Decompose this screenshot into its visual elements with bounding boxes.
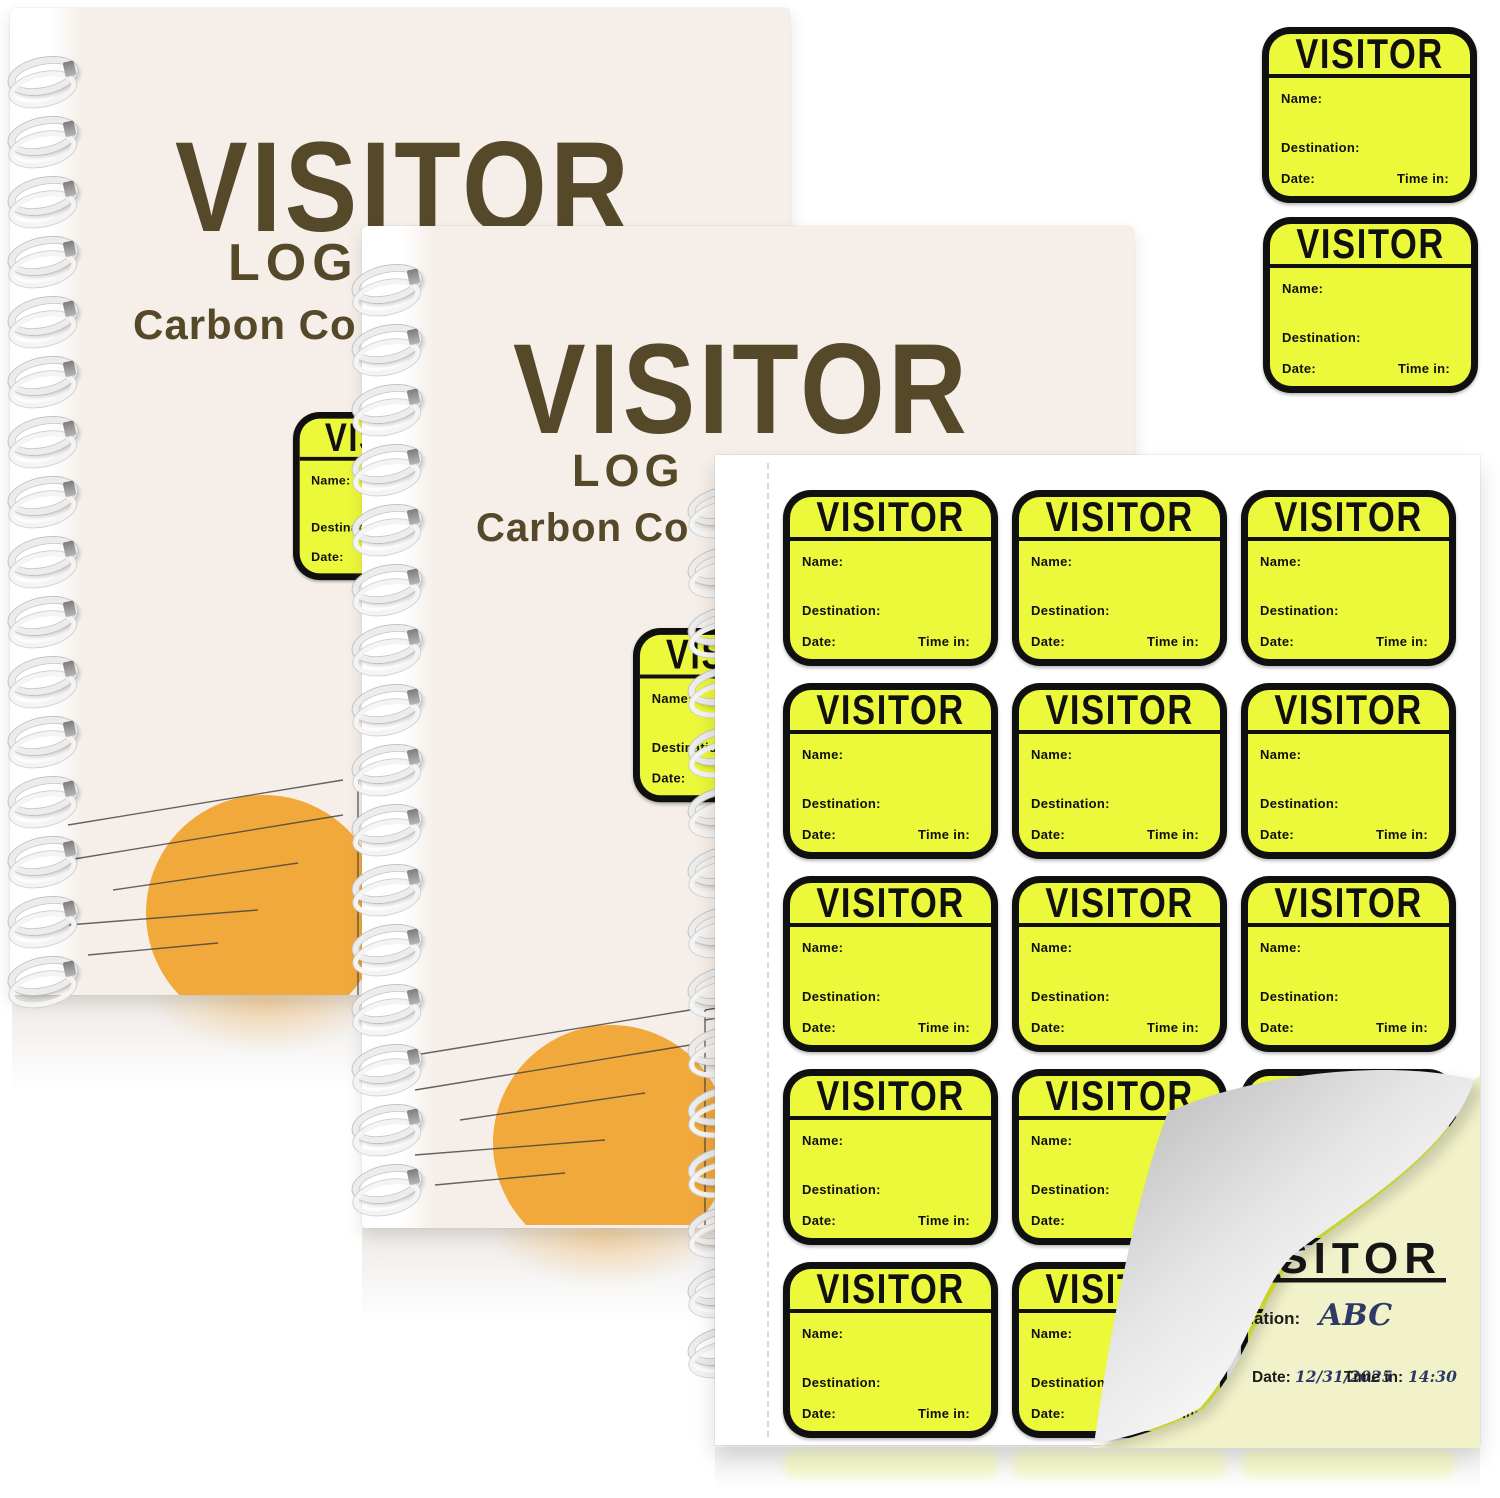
sheet-visitor-badge-sticker: VISITOR Name: Destination: Date: Time in… (783, 490, 998, 666)
visitor-badge-face: VISITOR Name: Destination: Date: Time in… (1270, 224, 1471, 386)
time-in-label: Time in: (918, 1406, 970, 1421)
name-label: Name: (1031, 1326, 1072, 1341)
visitor-badge-header: VISITOR (1019, 883, 1220, 927)
sheet-visitor-badge-sticker: VISITOR Name: Destination: Date: Time in… (1012, 683, 1227, 859)
date-label: Date: (1031, 1020, 1065, 1035)
sheet-reflection (715, 1447, 1480, 1498)
visitor-badge-body: Name: Destination: Date: Time in: (790, 1120, 991, 1238)
perforation-line (767, 463, 769, 1437)
visitor-badge-face: VISITOR Name: Destination: Date: Time in… (1269, 34, 1470, 196)
time-in-label: Time in: (1376, 1020, 1428, 1035)
destination-label: Destination: (802, 603, 881, 618)
visitor-badge-header: VISITOR (790, 883, 991, 927)
date-label: Date: (311, 550, 343, 564)
loose-visitor-badge: VISITOR Name: Destination: Date: Time in… (1262, 27, 1477, 203)
notebook2-sun-reflection (487, 1228, 723, 1286)
date-label: Date: (1031, 634, 1065, 649)
carbon-time-in-value: 14:30 (1408, 1367, 1457, 1386)
time-in-label: Time in: (1397, 171, 1449, 186)
time-in-label: Time in: (1147, 1020, 1199, 1035)
visitor-badge-footer: Date: Time in: (1260, 634, 1441, 649)
visitor-badge-body: Name: Destination: Date: Time in: (1019, 541, 1220, 659)
date-label: Date: (802, 827, 836, 842)
name-label: Name: (1031, 747, 1072, 762)
name-label: Name: (1281, 91, 1322, 106)
visitor-badge-body: Name: Destination: Date: Time in: (1248, 927, 1449, 1045)
visitor-badge-header: VISITOR (1269, 34, 1470, 78)
visitor-badge-face: VISITOR Name: Destination: Date: Time in… (1019, 690, 1220, 852)
name-label: Name: (1031, 554, 1072, 569)
destination-label: Destination: (1281, 140, 1360, 155)
visitor-badge-face: VISITOR Name: Destination: Date: Time in… (790, 1269, 991, 1431)
time-in-label: Time in: (1147, 827, 1199, 842)
destination-label: Destination: (1260, 603, 1339, 618)
destination-label: Destination: (802, 989, 881, 1004)
visitor-badge-footer: Date: Time in: (802, 1213, 983, 1228)
destination-label: Destination: (1031, 989, 1110, 1004)
visitor-badge-face: VISITOR Name: Destination: Date: Time in… (790, 497, 991, 659)
visitor-badge-title: VISITOR (1274, 690, 1423, 731)
name-label: Name: (311, 473, 350, 487)
visitor-badge-title: VISITOR (816, 883, 965, 924)
visitor-badge-footer: Date: Time in: (1260, 1020, 1441, 1035)
name-label: Name: (1282, 281, 1323, 296)
destination-label: Destination: (802, 796, 881, 811)
time-in-label: Time in: (1376, 827, 1428, 842)
carbon-date-label: Date: (1252, 1369, 1291, 1386)
badge-reflection-blob (1012, 1450, 1227, 1478)
date-label: Date: (1031, 827, 1065, 842)
visitor-badge-header: VISITOR (1248, 883, 1449, 927)
name-label: Name: (802, 1133, 843, 1148)
visitor-badge-footer: Date: Time in: (1031, 634, 1212, 649)
visitor-badge-footer: Date: Time in: (1031, 827, 1212, 842)
name-label: Name: (1260, 747, 1301, 762)
visitor-badge-title: VISITOR (816, 497, 965, 538)
name-label: Name: (1031, 1133, 1072, 1148)
destination-label: Destination: (1282, 330, 1361, 345)
notebook2-subtitle: LOG (572, 448, 685, 493)
name-label: Name: (802, 747, 843, 762)
visitor-badge-body: Name: Destination: Date: Time in: (1019, 734, 1220, 852)
visitor-badge-header: VISITOR (790, 1076, 991, 1120)
visitor-badge-title: VISITOR (1045, 883, 1194, 924)
sheet-visitor-badge-sticker: VISITOR Name: Destination: Date: Time in… (783, 683, 998, 859)
date-label: Date: (802, 1020, 836, 1035)
visitor-badge-title: VISITOR (1045, 497, 1194, 538)
loose-visitor-badge: VISITOR Name: Destination: Date: Time in… (1263, 217, 1478, 393)
visitor-badge-footer: Date: Time in: (1031, 1020, 1212, 1035)
visitor-badge-title: VISITOR (1045, 690, 1194, 731)
destination-label: Destination: (1031, 796, 1110, 811)
date-label: Date: (1031, 1406, 1065, 1421)
badge-reflection-blob (783, 1450, 998, 1478)
visitor-badge-title: VISITOR (1295, 34, 1444, 75)
destination-label: Destination: (802, 1182, 881, 1197)
name-label: Name: (1031, 940, 1072, 955)
notebook1-subtitle: LOG (228, 237, 359, 289)
date-label: Date: (802, 1213, 836, 1228)
visitor-badge-header: VISITOR (1248, 690, 1449, 734)
visitor-badge-header: VISITOR (1270, 224, 1471, 268)
badge-reflection-blob (1241, 1450, 1456, 1478)
visitor-badge-face: VISITOR Name: Destination: Date: Time in… (1248, 883, 1449, 1045)
date-label: Date: (1260, 827, 1294, 842)
time-in-label: Time in: (1147, 634, 1199, 649)
visitor-badge-title: VISITOR (816, 690, 965, 731)
time-in-label: Time in: (918, 1020, 970, 1035)
destination-label: Destination: (802, 1375, 881, 1390)
date-label: Date: (652, 771, 686, 786)
visitor-badge-body: Name: Destination: Date: Time in: (790, 1313, 991, 1431)
name-label: Name: (802, 940, 843, 955)
time-in-label: Time in: (1398, 361, 1450, 376)
visitor-badge-body: Name: Destination: Date: Time in: (1248, 734, 1449, 852)
visitor-badge-header: VISITOR (790, 690, 991, 734)
date-label: Date: (802, 1406, 836, 1421)
visitor-badge-footer: Date: Time in: (1282, 361, 1463, 376)
sheet-visitor-badge-sticker: VISITOR Name: Destination: Date: Time in… (783, 1069, 998, 1245)
time-in-label: Time in: (1376, 634, 1428, 649)
date-label: Date: (1260, 634, 1294, 649)
visitor-badge-footer: Date: Time in: (802, 634, 983, 649)
sheet-visitor-badge-sticker: VISITOR Name: Destination: Date: Time in… (1241, 683, 1456, 859)
notebook2-title: VISITOR (513, 326, 970, 454)
destination-label: Destination: (1260, 796, 1339, 811)
visitor-badge-header: VISITOR (790, 497, 991, 541)
visitor-badge-header: VISITOR (1019, 690, 1220, 734)
visitor-badge-body: Name: Destination: Date: Time in: (1019, 927, 1220, 1045)
date-label: Date: (1260, 1020, 1294, 1035)
visitor-badge-header: VISITOR (1019, 497, 1220, 541)
date-label: Date: (1282, 361, 1316, 376)
visitor-badge-footer: Date: Time in: (802, 1020, 983, 1035)
visitor-badge-body: Name: Destination: Date: Time in: (1248, 541, 1449, 659)
name-label: Name: (1260, 940, 1301, 955)
date-label: Date: (1031, 1213, 1065, 1228)
visitor-badge-face: VISITOR Name: Destination: Date: Time in… (790, 1076, 991, 1238)
time-in-label: Time in: (918, 634, 970, 649)
name-label: Name: (652, 691, 693, 706)
name-label: Name: (802, 1326, 843, 1341)
visitor-badge-face: VISITOR Name: Destination: Date: Time in… (1019, 883, 1220, 1045)
visitor-badge-header: VISITOR (790, 1269, 991, 1313)
visitor-badge-footer: Date: Time in: (1260, 827, 1441, 842)
destination-label: Destination: (1031, 603, 1110, 618)
notebook1-subtitle2: Carbon Co (133, 304, 357, 346)
visitor-badge-face: VISITOR Name: Destination: Date: Time in… (1248, 497, 1449, 659)
carbon-time-in-label: Time in: (1344, 1369, 1403, 1386)
visitor-badge-title: VISITOR (816, 1269, 965, 1310)
visitor-badge-header: VISITOR (1248, 497, 1449, 541)
visitor-badge-footer: Date: Time in: (1281, 171, 1462, 186)
visitor-badge-title: VISITOR (816, 1076, 965, 1117)
sheet-visitor-badge-sticker: VISITOR Name: Destination: Date: Time in… (1241, 876, 1456, 1052)
notebook1-sun-reflection (148, 995, 384, 1053)
product-image: VISITOR LOG Carbon Co VISITOR Name: Dest… (0, 0, 1500, 1498)
time-in-label: Time in: (918, 827, 970, 842)
visitor-badge-footer: Date: Time in: (802, 827, 983, 842)
visitor-badge-face: VISITOR Name: Destination: Date: Time in… (1248, 690, 1449, 852)
time-in-label: Time in: (918, 1213, 970, 1228)
sheet-visitor-badge-sticker: VISITOR Name: Destination: Date: Time in… (1012, 876, 1227, 1052)
name-label: Name: (1260, 554, 1301, 569)
sheet-visitor-badge-sticker: VISITOR Name: Destination: Date: Time in… (783, 876, 998, 1052)
visitor-badge-title: VISITOR (1274, 497, 1423, 538)
date-label: Date: (1281, 171, 1315, 186)
carbon-destination-value: ABC (1316, 1298, 1392, 1333)
visitor-badge-body: Name: Destination: Date: Time in: (1269, 78, 1470, 196)
visitor-badge-face: VISITOR Name: Destination: Date: Time in… (790, 690, 991, 852)
visitor-badge-body: Name: Destination: Date: Time in: (1270, 268, 1471, 386)
date-label: Date: (802, 634, 836, 649)
visitor-badge-face: VISITOR Name: Destination: Date: Time in… (790, 883, 991, 1045)
sheet-visitor-badge-sticker: VISITOR Name: Destination: Date: Time in… (1012, 490, 1227, 666)
visitor-badge-body: Name: Destination: Date: Time in: (790, 927, 991, 1045)
name-label: Name: (802, 554, 843, 569)
visitor-badge-body: Name: Destination: Date: Time in: (790, 541, 991, 659)
sheet-visitor-badge-sticker: VISITOR Name: Destination: Date: Time in… (783, 1262, 998, 1438)
visitor-badge-title: VISITOR (1274, 883, 1423, 924)
notebook2-subtitle2: Carbon Co (476, 508, 689, 548)
visitor-badge-title: VISITOR (1296, 224, 1445, 265)
page-curl-corner: VISITOR Destination: ABC Date: 12/31/202… (1082, 1062, 1480, 1448)
visitor-badge-footer: Date: Time in: (802, 1406, 983, 1421)
sheet-visitor-badge-sticker: VISITOR Name: Destination: Date: Time in… (1241, 490, 1456, 666)
visitor-badge-face: VISITOR Name: Destination: Date: Time in… (1019, 497, 1220, 659)
visitor-badge-body: Name: Destination: Date: Time in: (790, 734, 991, 852)
destination-label: Destination: (1260, 989, 1339, 1004)
